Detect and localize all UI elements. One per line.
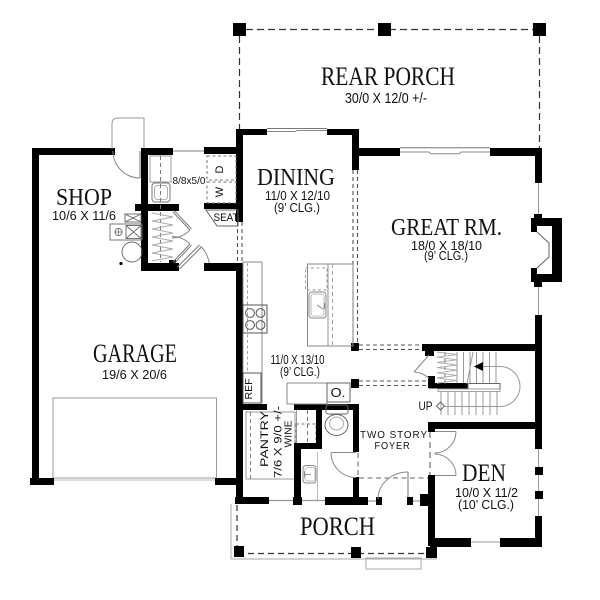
svg-text:O.: O. xyxy=(331,385,346,400)
svg-text:D: D xyxy=(214,165,226,173)
svg-text:FOYER: FOYER xyxy=(375,440,411,452)
svg-text:PORCH: PORCH xyxy=(300,512,375,541)
svg-text:WINE: WINE xyxy=(283,421,295,448)
svg-text:(9’ CLG.): (9’ CLG.) xyxy=(280,365,320,379)
svg-text:W: W xyxy=(214,186,226,197)
svg-text:DINING: DINING xyxy=(257,165,335,191)
svg-text:30/0 X 12/0 +/-: 30/0 X 12/0 +/- xyxy=(345,90,427,107)
svg-text:DEN: DEN xyxy=(462,460,506,487)
svg-text:REAR PORCH: REAR PORCH xyxy=(321,62,455,91)
svg-text:(9’ CLG.): (9’ CLG.) xyxy=(274,201,320,215)
svg-text:SEAT: SEAT xyxy=(214,212,239,224)
svg-text:UP: UP xyxy=(419,401,433,413)
svg-text:(9’ CLG.): (9’ CLG.) xyxy=(424,249,468,263)
svg-text:SHOP: SHOP xyxy=(56,185,112,211)
svg-text:GREAT RM.: GREAT RM. xyxy=(391,215,502,241)
svg-text:PANTRY: PANTRY xyxy=(259,410,271,467)
svg-text:GARAGE: GARAGE xyxy=(93,339,177,368)
svg-text:8/8x5/0: 8/8x5/0 xyxy=(173,175,206,187)
svg-text:(10’ CLG.): (10’ CLG.) xyxy=(458,498,514,512)
svg-text:REF: REF xyxy=(243,379,255,400)
svg-text:10/6 X 11/6: 10/6 X 11/6 xyxy=(52,209,116,223)
svg-text:19/6 X 20/6: 19/6 X 20/6 xyxy=(102,368,167,382)
